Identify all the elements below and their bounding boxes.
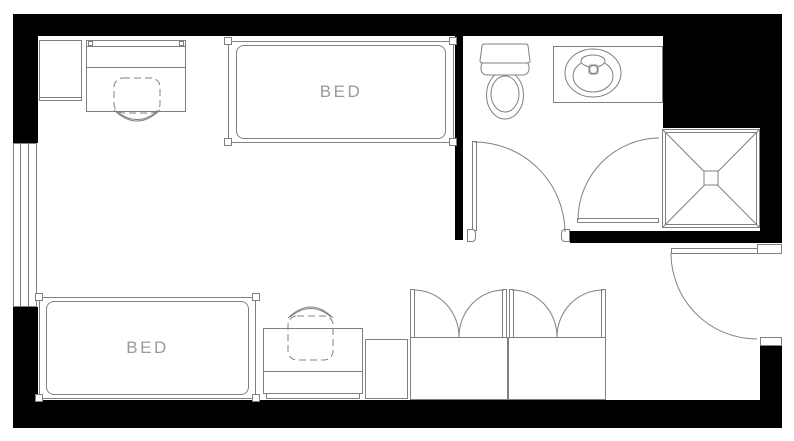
closet-door-arc <box>414 290 459 337</box>
bed-label-bottom: BED <box>46 301 249 395</box>
closet-right <box>508 337 606 400</box>
desk-top-shelf-edge <box>86 46 186 47</box>
wall-bottom <box>13 400 782 428</box>
wall-left-upper <box>13 14 38 143</box>
desk-bottom <box>263 328 363 394</box>
toilet-tank <box>480 44 530 63</box>
toilet-seat-hinge <box>481 61 529 75</box>
closet-door-arc <box>557 290 603 337</box>
bed-post <box>449 37 457 45</box>
bed-post <box>224 37 232 45</box>
window-mullion <box>28 143 29 307</box>
door-jamb <box>561 229 570 242</box>
toilet-bowl-outer <box>487 71 524 119</box>
chair-backrest <box>288 307 333 318</box>
entry-door-jamb-lower <box>760 337 782 346</box>
wall-right-upper <box>760 14 782 243</box>
bed-label-top: BED <box>236 45 446 139</box>
chair-backrest <box>116 111 158 120</box>
closet-door-arc <box>459 290 504 337</box>
bathroom-door-panel <box>472 141 477 231</box>
bathroom-door-swing-arc <box>474 142 565 232</box>
wall-bathroom-bottom <box>570 231 782 243</box>
window-mullion <box>20 143 21 307</box>
shower-door-panel <box>577 218 659 223</box>
toilet-bowl-inner <box>491 76 519 112</box>
bed-post <box>252 293 260 301</box>
window <box>13 143 37 307</box>
closet-door-arc <box>512 290 557 337</box>
desk-top-edge <box>86 67 186 68</box>
closet-door-leaf <box>601 289 606 338</box>
chair-backrest <box>290 309 331 318</box>
floor-plan: BED BED <box>0 0 794 441</box>
shower-door-swing-arc <box>578 138 659 220</box>
dresser <box>365 339 408 399</box>
entry-door-panel <box>671 248 758 254</box>
entry-door-swing-arc <box>671 253 757 339</box>
bed-post <box>224 138 232 146</box>
closet-left <box>410 337 508 400</box>
bed-post <box>35 394 43 402</box>
desk-shelf-post <box>88 41 93 46</box>
wall-bathroom-divider <box>455 14 463 240</box>
closet-door-leaf <box>509 289 514 338</box>
sink-counter <box>553 46 663 103</box>
wall-right-lower <box>760 345 782 428</box>
bed-post <box>449 138 457 146</box>
bed-post <box>35 293 43 301</box>
closet-door-leaf <box>410 289 415 338</box>
entry-door-jamb-upper <box>757 244 782 254</box>
shelf-cabinet-lip <box>39 97 82 98</box>
desk-bottom-edge <box>263 371 363 372</box>
desk-shelf-post <box>179 41 184 46</box>
door-jamb <box>467 229 476 242</box>
shelf-cabinet <box>39 40 82 101</box>
desk-bottom-base <box>266 393 360 399</box>
bed-post <box>252 394 260 402</box>
shower-inner-rim <box>665 132 757 225</box>
desk-top <box>86 40 186 112</box>
closet-door-leaf <box>502 289 507 338</box>
